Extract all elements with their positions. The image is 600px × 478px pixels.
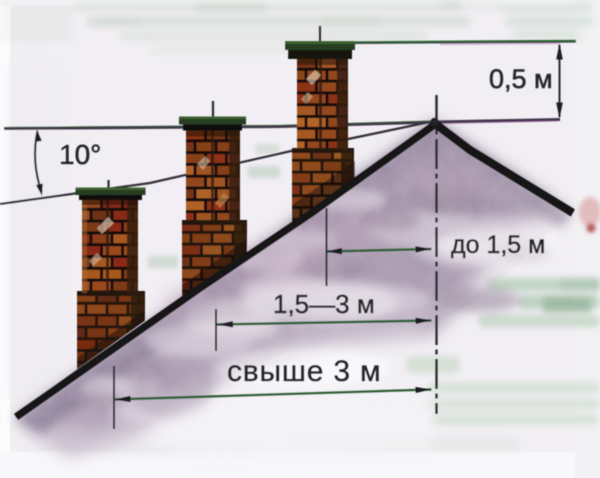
svg-text:до 1,5 м: до 1,5 м (451, 231, 545, 259)
svg-text:1,5—3 м: 1,5—3 м (273, 289, 375, 319)
svg-text:0,5 м: 0,5 м (489, 64, 553, 94)
svg-text:10°: 10° (59, 139, 101, 170)
svg-text:свыше 3 м: свыше 3 м (227, 355, 381, 388)
